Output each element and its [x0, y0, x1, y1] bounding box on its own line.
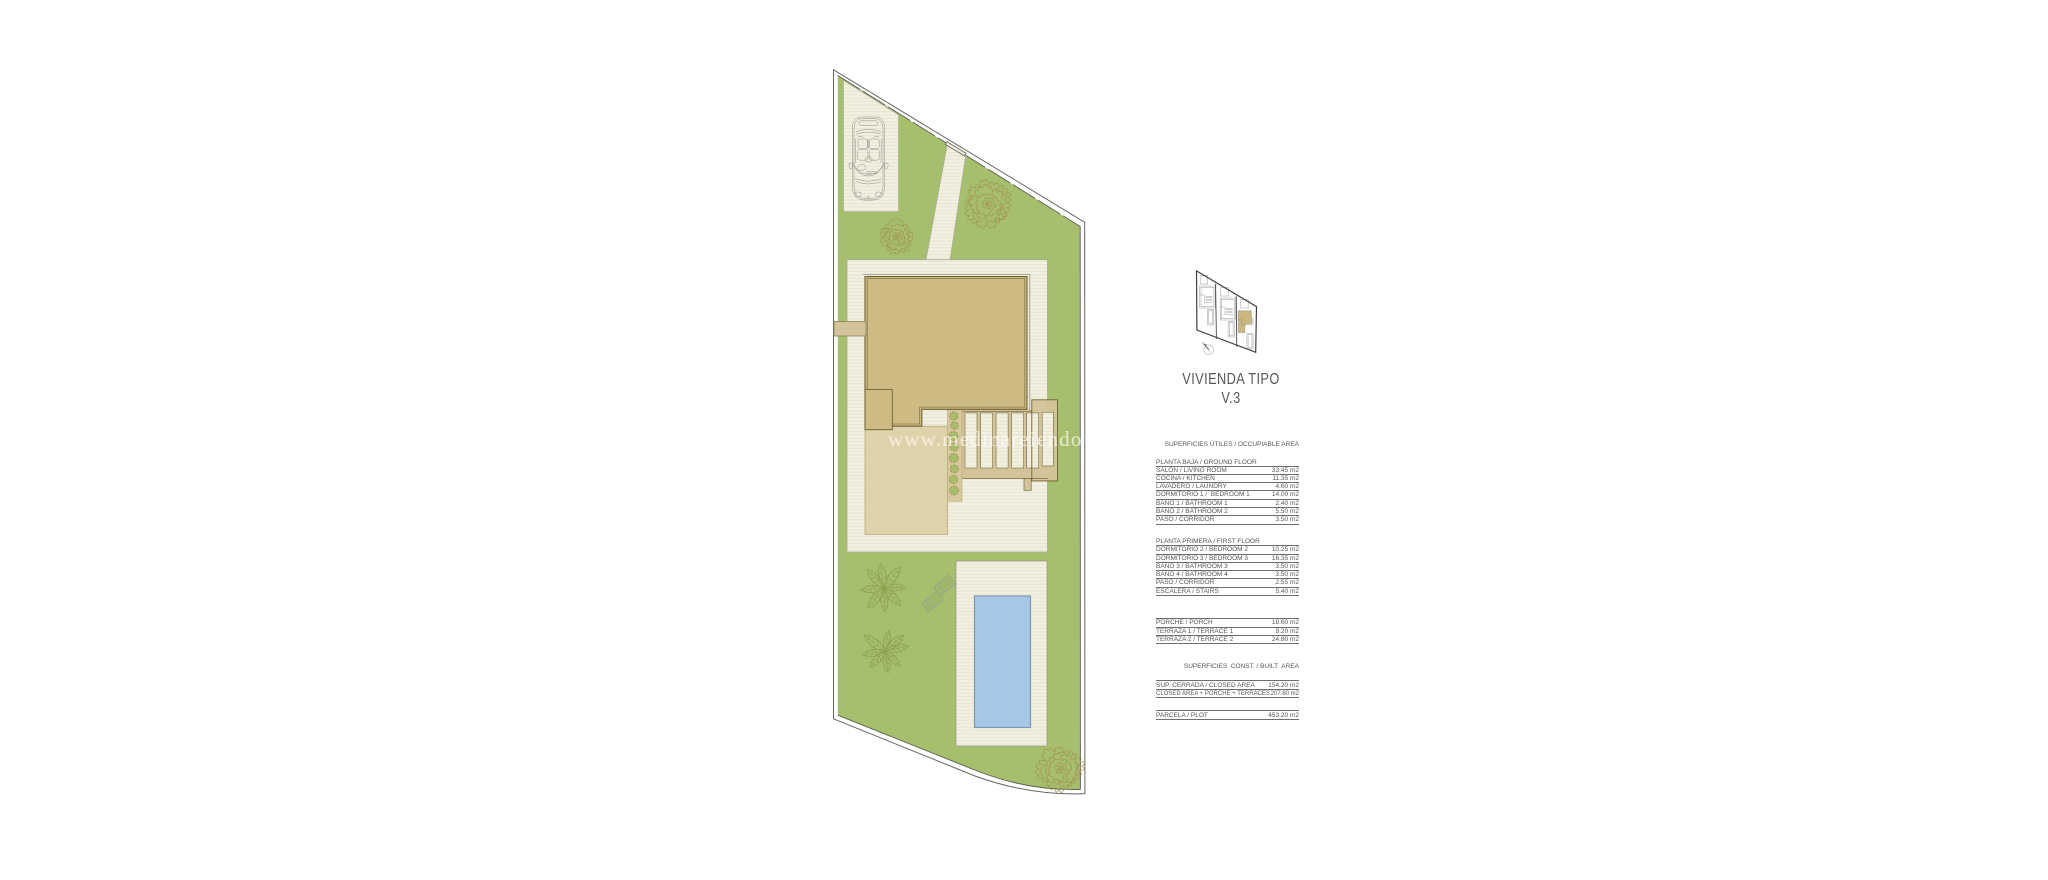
svg-text:www.medinareiendo: www.medinareiendo: [888, 427, 1083, 451]
